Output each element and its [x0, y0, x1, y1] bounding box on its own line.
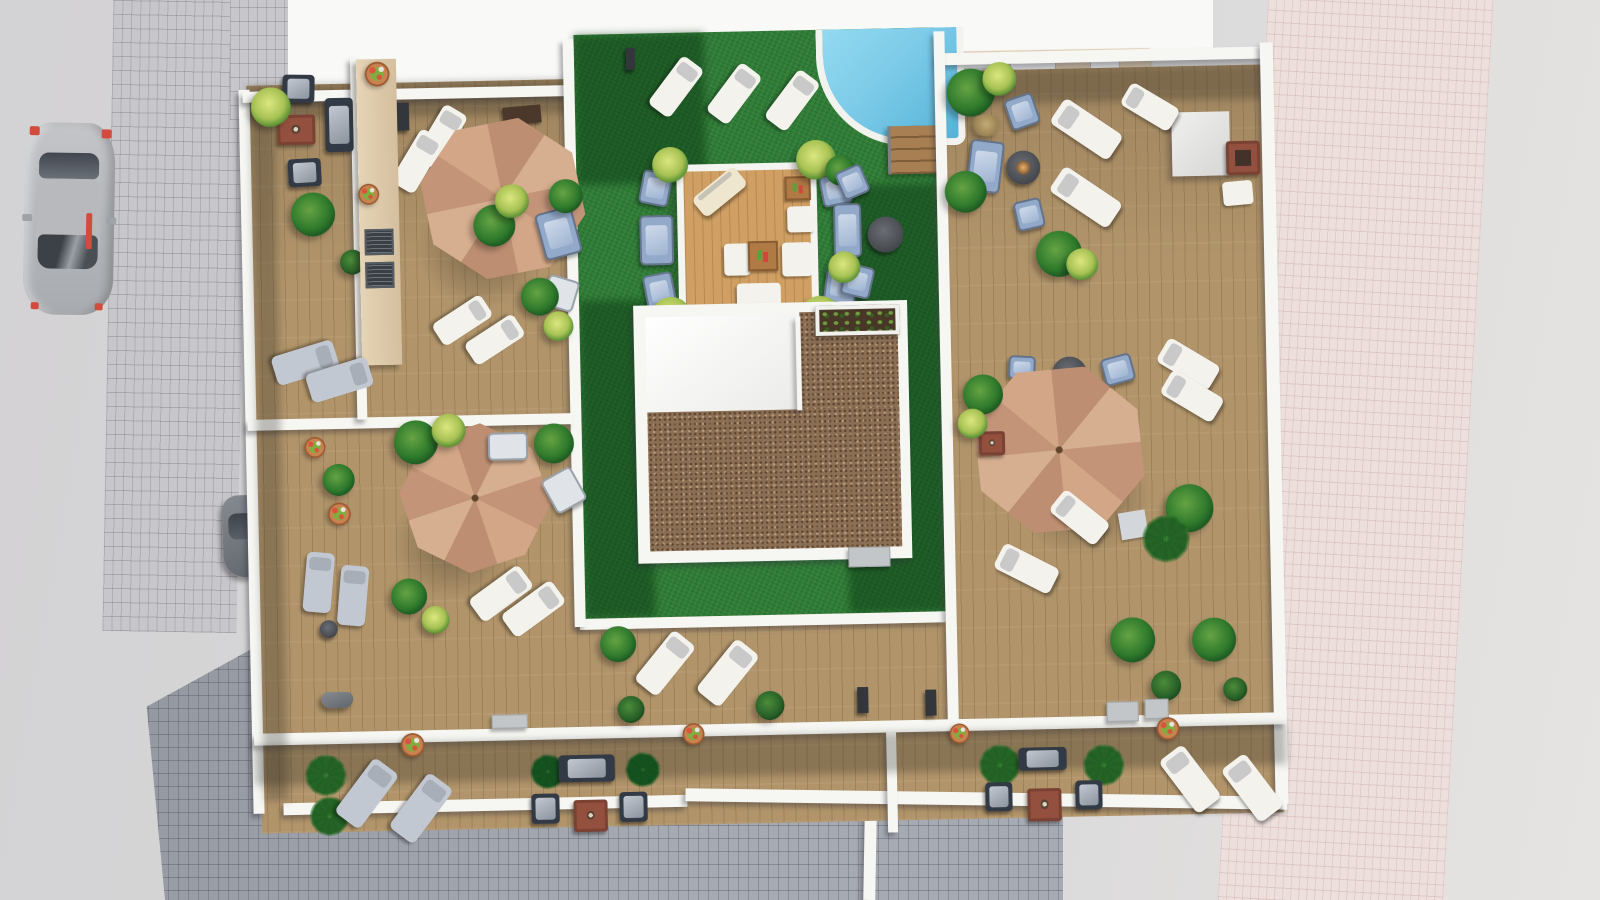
rooftop-vent-unit — [1106, 701, 1138, 722]
car-mirror — [22, 214, 32, 221]
sun-lounger — [337, 565, 370, 627]
light-bollard — [857, 687, 869, 713]
roof-access-box — [1171, 111, 1230, 176]
armchair — [1075, 780, 1103, 810]
outdoor-sofa — [1018, 747, 1066, 771]
armchair — [531, 793, 560, 824]
car-red-detail — [30, 126, 40, 135]
car-red-detail — [102, 129, 112, 138]
car-rear-window — [39, 152, 99, 179]
light-bollard — [925, 690, 937, 716]
outdoor-sofa — [325, 98, 354, 153]
armchair — [985, 782, 1013, 812]
side-table — [748, 241, 779, 272]
coffee-table — [573, 799, 608, 832]
rooftop — [238, 46, 1289, 840]
armchair — [619, 792, 648, 823]
coffee-table — [1027, 788, 1062, 822]
armchair — [287, 158, 322, 188]
outdoor-seat-cushion — [724, 243, 751, 276]
rooftop-core-roof — [645, 314, 799, 412]
car-mirror — [106, 217, 116, 224]
car-red-detail — [86, 213, 93, 249]
parked-vehicle — [321, 692, 353, 709]
built-in-grill — [365, 262, 395, 289]
gravel-roof — [647, 407, 902, 551]
rooftop-vent-unit — [848, 546, 890, 567]
outdoor-seat-cushion — [782, 242, 813, 277]
outdoor-kitchen-counter — [356, 59, 402, 366]
planter-box — [815, 304, 900, 336]
outdoor-seat-cushion — [1222, 180, 1254, 207]
aerial-render-stage — [0, 0, 1600, 900]
rooftop-vent-unit — [492, 714, 528, 729]
parked-car — [21, 116, 120, 318]
fire-pit-table — [1226, 141, 1261, 176]
sun-lounger — [302, 551, 335, 613]
outdoor-sofa — [488, 432, 529, 461]
outdoor-sofa — [639, 215, 674, 266]
outdoor-seat-cushion — [787, 206, 816, 233]
outdoor-sofa — [558, 754, 615, 782]
light-bollard — [626, 48, 635, 70]
side-table — [784, 176, 810, 201]
pool-steps — [887, 125, 942, 174]
outdoor-sofa — [833, 203, 862, 258]
car-red-detail — [31, 302, 39, 309]
built-in-grill — [364, 229, 394, 256]
car-red-detail — [95, 303, 103, 310]
